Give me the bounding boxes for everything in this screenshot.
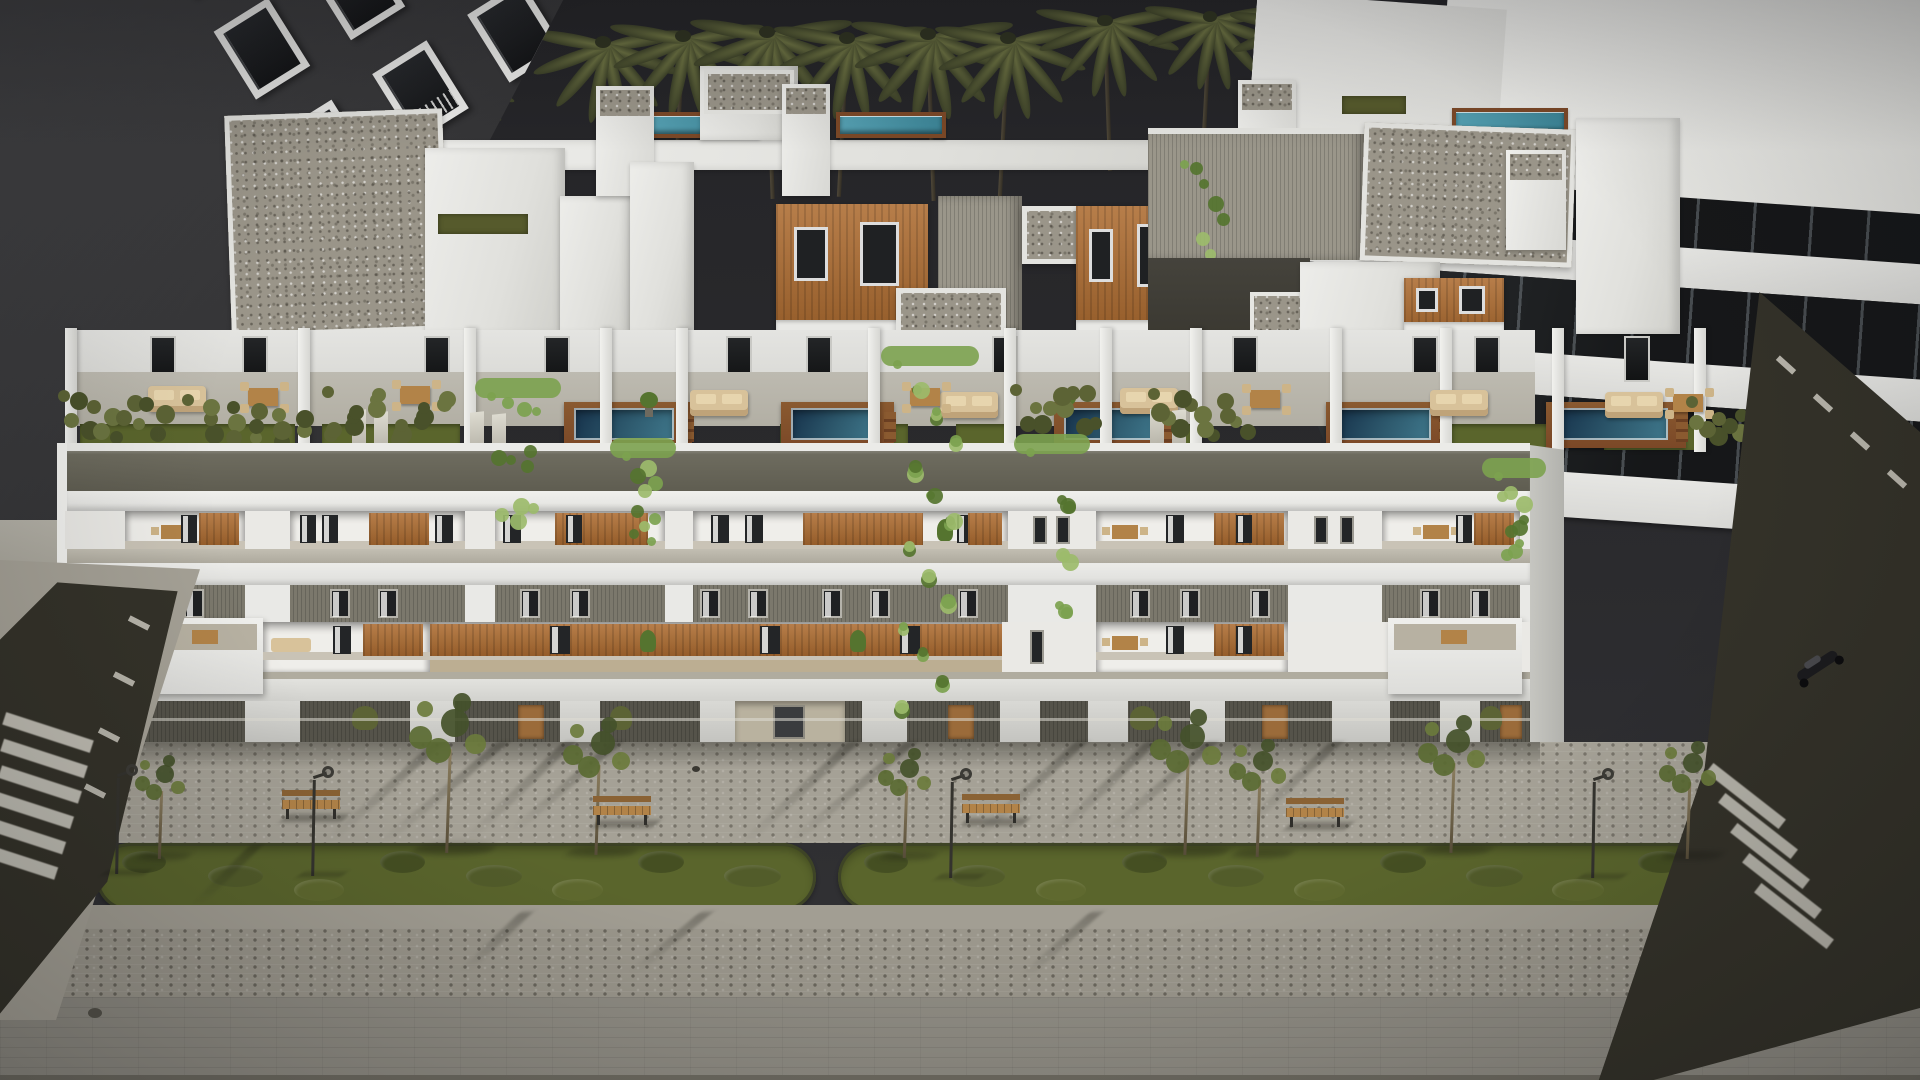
tree-foliage	[1456, 715, 1472, 731]
bench-leg	[644, 815, 647, 825]
tree-foliage	[171, 781, 185, 795]
tree-trunk	[1449, 763, 1455, 853]
bench-back	[1286, 798, 1344, 804]
tree-foliage	[908, 748, 921, 761]
lamp-pole	[115, 778, 120, 874]
bench-back	[962, 794, 1020, 800]
tree-trunk	[1256, 779, 1262, 856]
tree-foliage	[1691, 741, 1705, 755]
tree-foliage	[601, 717, 617, 733]
lamp-head	[960, 768, 972, 780]
street-tree	[1144, 707, 1228, 865]
tree-foliage	[156, 765, 174, 783]
tree-foliage	[453, 693, 471, 711]
tree-shadow	[134, 852, 193, 860]
lamp-pole	[311, 780, 316, 876]
bench-back	[593, 796, 651, 802]
tree-foliage	[1672, 774, 1691, 793]
tree-shadow	[409, 843, 499, 855]
lamp-shadow	[1577, 874, 1627, 879]
bench-leg	[1013, 813, 1016, 823]
tree-foliage	[917, 776, 931, 790]
lamp-shadow	[297, 872, 347, 877]
lamp-head	[1602, 768, 1614, 780]
bench-shadow	[960, 818, 1030, 826]
street-tree	[1654, 739, 1722, 867]
tree-foliage	[1433, 754, 1455, 776]
tree-foliage	[1158, 716, 1173, 731]
tree-foliage	[465, 734, 486, 755]
tree-foliage	[612, 752, 630, 770]
tree-foliage	[591, 731, 615, 755]
street-tree	[1412, 713, 1492, 863]
street-tree	[557, 715, 637, 865]
street-tree	[873, 746, 937, 866]
tree-shadow	[878, 852, 941, 860]
street-tree	[130, 753, 190, 866]
park-bench	[593, 796, 653, 826]
tree-foliage	[1242, 772, 1261, 791]
bench-leg	[333, 809, 336, 819]
tree-shadow	[563, 847, 641, 857]
tree-foliage	[1701, 770, 1716, 785]
tree-foliage	[578, 756, 600, 778]
bench-shadow	[1284, 822, 1354, 830]
lamp-pole	[1591, 782, 1596, 878]
bench-leg	[286, 809, 289, 819]
street-furniture	[0, 0, 1920, 1080]
tree-shadow	[1418, 845, 1496, 855]
tree-foliage	[441, 709, 469, 737]
tree-foliage	[883, 753, 894, 764]
tree-trunk	[158, 790, 163, 858]
street-lamp	[302, 766, 332, 876]
street-lamp	[1582, 768, 1612, 878]
lamp-head	[322, 766, 334, 778]
tree-foliage	[1271, 768, 1286, 783]
lamp-head	[126, 764, 138, 776]
tree-shadow	[1659, 851, 1726, 860]
bench-leg	[1290, 817, 1293, 827]
tree-shadow	[1229, 849, 1296, 858]
bench-leg	[597, 815, 600, 825]
tree-foliage	[1180, 724, 1205, 749]
street-lamp	[106, 764, 136, 874]
lamp-pole	[949, 782, 954, 878]
street-tree	[1224, 737, 1292, 865]
tree-trunk	[445, 748, 452, 852]
bench-shadow	[591, 820, 661, 828]
tree-foliage	[1446, 729, 1470, 753]
tree-foliage	[1425, 722, 1439, 736]
bench-leg	[1337, 817, 1340, 827]
tree-foliage	[570, 724, 584, 738]
tree-foliage	[1665, 747, 1677, 759]
street-lamp	[940, 768, 970, 878]
lamp-shadow	[935, 874, 985, 879]
tree-foliage	[1202, 746, 1221, 765]
tree-trunk	[1686, 781, 1692, 858]
tree-foliage	[1253, 751, 1273, 771]
bench-seat	[593, 806, 651, 815]
tree-foliage	[900, 759, 919, 778]
bench-seat	[962, 804, 1020, 813]
tree-foliage	[1683, 753, 1703, 773]
tree-foliage	[1467, 750, 1485, 768]
tree-trunk	[1183, 759, 1189, 854]
park-bench	[1286, 798, 1346, 828]
tree-foliage	[417, 701, 433, 717]
lamp-shadow	[101, 870, 151, 875]
tree-foliage	[140, 760, 151, 771]
tree-foliage	[1235, 745, 1247, 757]
park-bench	[962, 794, 1022, 824]
tree-foliage	[1261, 739, 1275, 753]
tree-foliage	[163, 755, 175, 767]
bench-seat	[1286, 808, 1344, 817]
tree-trunk	[903, 786, 909, 858]
street-tree	[402, 691, 494, 864]
tree-foliage	[1190, 709, 1207, 726]
architectural-render-scene	[0, 0, 1920, 1080]
tree-shadow	[1150, 846, 1232, 857]
